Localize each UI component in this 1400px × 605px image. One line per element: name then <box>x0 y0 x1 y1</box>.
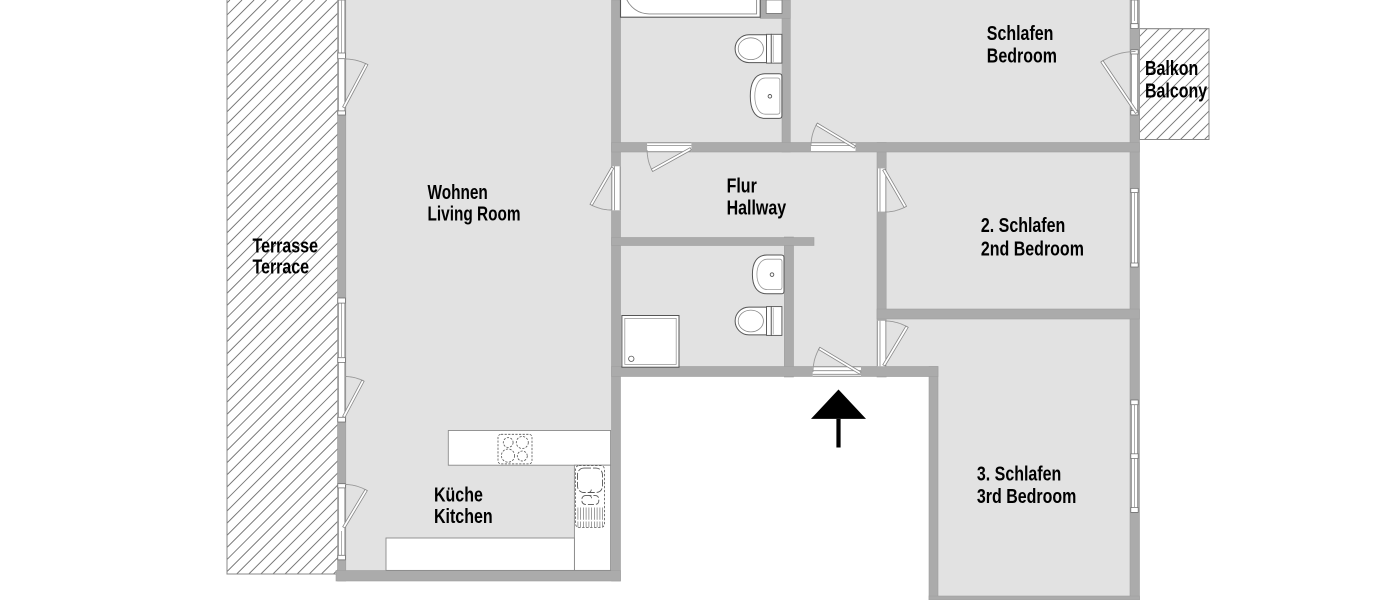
svg-text:Küche: Küche <box>434 482 483 505</box>
svg-text:2. Schlafen: 2. Schlafen <box>981 213 1065 236</box>
svg-text:Terrasse: Terrasse <box>253 234 318 257</box>
svg-text:Living Room: Living Room <box>428 202 521 225</box>
svg-text:3. Schlafen: 3. Schlafen <box>977 462 1061 485</box>
svg-text:2nd Bedroom: 2nd Bedroom <box>981 236 1084 259</box>
svg-text:Kitchen: Kitchen <box>434 504 493 527</box>
svg-text:Wohnen: Wohnen <box>428 181 488 204</box>
svg-text:Flur: Flur <box>727 173 757 196</box>
svg-text:3rd Bedroom: 3rd Bedroom <box>977 484 1076 507</box>
svg-text:Terrace: Terrace <box>253 255 310 278</box>
svg-text:Schlafen: Schlafen <box>987 21 1054 44</box>
svg-text:Hallway: Hallway <box>727 195 787 218</box>
svg-text:Bedroom: Bedroom <box>987 44 1057 67</box>
svg-text:Balcony: Balcony <box>1145 79 1208 102</box>
svg-text:Balkon: Balkon <box>1145 56 1198 79</box>
